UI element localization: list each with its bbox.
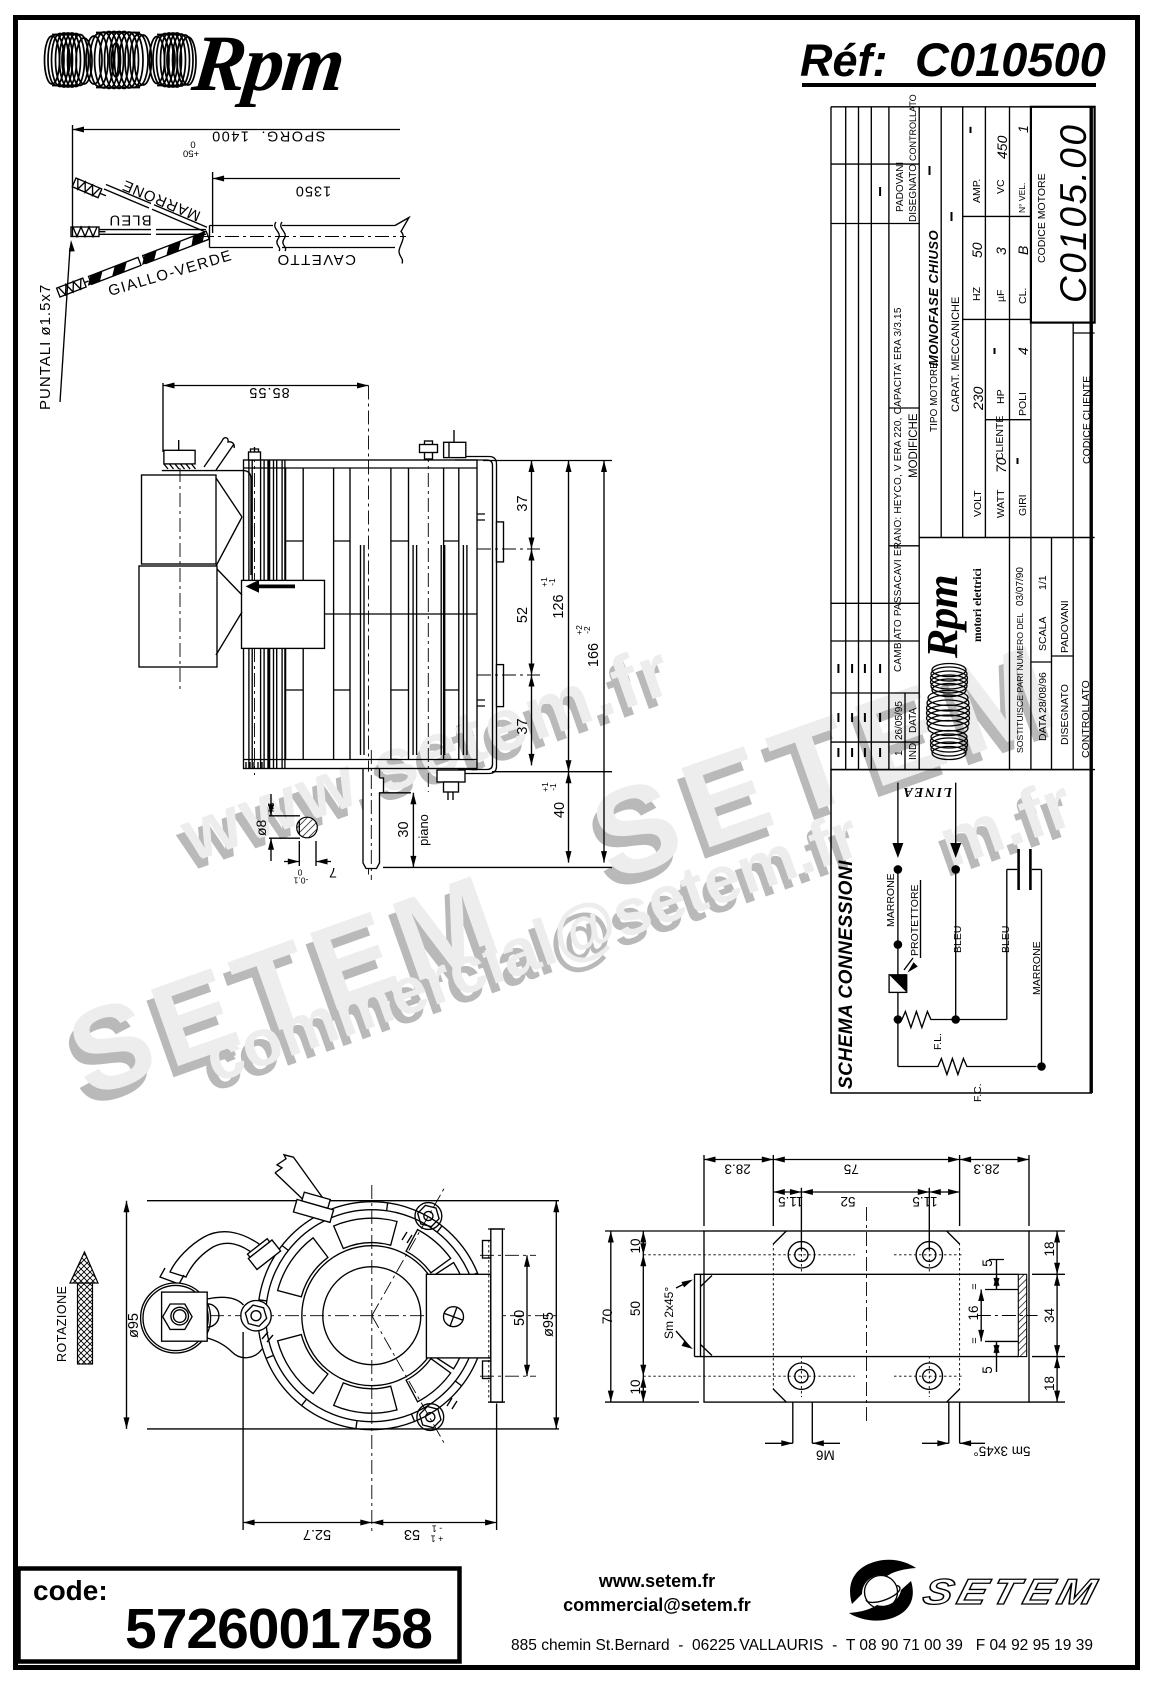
svg-text:10: 10 bbox=[628, 1238, 643, 1253]
svg-text:18: 18 bbox=[1042, 1376, 1057, 1391]
svg-text:166: 166 bbox=[586, 643, 602, 667]
svg-text:1: 1 bbox=[1015, 125, 1031, 133]
svg-text:TIPO MOTORE: TIPO MOTORE bbox=[929, 362, 940, 432]
svg-text:BLEU: BLEU bbox=[108, 212, 151, 229]
svg-text:code:: code: bbox=[33, 1575, 108, 1606]
svg-text:11.5: 11.5 bbox=[778, 1194, 803, 1209]
svg-text:C0105.00: C0105.00 bbox=[1053, 123, 1094, 303]
svg-text:HP: HP bbox=[995, 389, 1007, 404]
svg-text:-1: -1 bbox=[548, 783, 558, 791]
svg-text:BLEU: BLEU bbox=[1000, 926, 1012, 953]
svg-text:WATT: WATT bbox=[995, 489, 1007, 518]
svg-text:PADOVANI: PADOVANI bbox=[895, 162, 906, 212]
svg-text:885 chemin St.Bernard - 0622: 885 chemin St.Bernard - 06225 VALLAURIS … bbox=[511, 1637, 1093, 1654]
svg-text:5: 5 bbox=[980, 1259, 995, 1267]
svg-text:5: 5 bbox=[980, 1366, 995, 1374]
svg-text:10: 10 bbox=[628, 1379, 643, 1394]
svg-text:CAMBIATO PASSACAVI ERANO: HEYC: CAMBIATO PASSACAVI ERANO: HEYCO, V ERA 2… bbox=[893, 307, 904, 672]
svg-text:1350: 1350 bbox=[295, 183, 331, 199]
svg-text:PROTETTORE: PROTETTORE bbox=[909, 884, 921, 956]
svg-text:MONOFASE CHIUSO: MONOFASE CHIUSO bbox=[926, 230, 941, 366]
svg-text:SCALA: SCALA bbox=[1037, 617, 1049, 651]
svg-text:40: 40 bbox=[552, 802, 568, 818]
svg-text:F.L.: F.L. bbox=[932, 1033, 944, 1050]
svg-text:37: 37 bbox=[515, 718, 531, 734]
svg-text:11.5: 11.5 bbox=[912, 1194, 937, 1209]
svg-text:50: 50 bbox=[512, 1310, 528, 1326]
svg-text:-2: -2 bbox=[582, 626, 592, 634]
svg-text:BLEU: BLEU bbox=[952, 926, 964, 953]
svg-text:PUNTALI ø1.5x7: PUNTALI ø1.5x7 bbox=[37, 284, 54, 410]
svg-text:M6: M6 bbox=[816, 1448, 835, 1463]
svg-text:126: 126 bbox=[551, 594, 567, 618]
svg-text:+ 1: + 1 bbox=[431, 1534, 444, 1544]
svg-text:5726001758: 5726001758 bbox=[125, 1597, 432, 1661]
svg-text:7: 7 bbox=[329, 865, 337, 881]
svg-text:18: 18 bbox=[1042, 1241, 1057, 1256]
svg-text:03/07/90: 03/07/90 bbox=[1015, 567, 1026, 606]
svg-text:F.C.: F.C. bbox=[972, 1083, 984, 1102]
svg-text:52: 52 bbox=[840, 1194, 855, 1209]
svg-text:75: 75 bbox=[844, 1162, 859, 1177]
svg-text:SPORG. 1400: SPORG. 1400 bbox=[211, 128, 326, 144]
svg-text:CODICE CLIENTE: CODICE CLIENTE bbox=[1081, 376, 1093, 464]
svg-text:26/05/95: 26/05/95 bbox=[894, 701, 905, 740]
svg-text:commercial@setem.fr: commercial@setem.fr bbox=[563, 1595, 751, 1615]
svg-text:-0.1: -0.1 bbox=[293, 876, 308, 886]
svg-text:LINEA: LINEA bbox=[902, 784, 953, 799]
svg-text:IND: IND bbox=[908, 743, 919, 760]
svg-text:50: 50 bbox=[628, 1301, 643, 1316]
svg-text:MODIFICHE: MODIFICHE bbox=[908, 413, 920, 478]
svg-text:34: 34 bbox=[1042, 1308, 1057, 1324]
svg-text:1: 1 bbox=[894, 750, 905, 756]
svg-text:Rpm: Rpm bbox=[188, 20, 348, 108]
svg-text:SCHEMA CONNESSIONI: SCHEMA CONNESSIONI bbox=[836, 860, 857, 1089]
svg-text:50: 50 bbox=[969, 242, 985, 258]
svg-text:3: 3 bbox=[993, 247, 1009, 255]
svg-text:AMP.: AMP. bbox=[971, 179, 983, 203]
svg-text:motori elettrici: motori elettrici bbox=[972, 567, 984, 642]
svg-text:CONTROLLATO: CONTROLLATO bbox=[908, 94, 918, 161]
svg-text:-1: -1 bbox=[547, 578, 557, 586]
svg-text:CARAT. MECCANICHE: CARAT. MECCANICHE bbox=[950, 297, 962, 412]
svg-text:28/08/96: 28/08/96 bbox=[1037, 672, 1049, 713]
svg-text:Sm 2x45°: Sm 2x45° bbox=[662, 1287, 676, 1339]
svg-text:DISEGNATO: DISEGNATO bbox=[1059, 684, 1071, 745]
svg-text:230: 230 bbox=[970, 386, 986, 411]
svg-text:=: = bbox=[969, 1337, 981, 1343]
svg-text:16: 16 bbox=[966, 1305, 981, 1320]
svg-text:52.7: 52.7 bbox=[303, 1526, 331, 1542]
svg-text:=: = bbox=[969, 1283, 981, 1289]
svg-text:ø95: ø95 bbox=[126, 1313, 142, 1338]
svg-text:www.setem.fr: www.setem.fr bbox=[598, 1571, 715, 1591]
svg-text:POLI: POLI bbox=[1017, 392, 1029, 416]
svg-text:DATA: DATA bbox=[1037, 715, 1049, 741]
svg-text:PADOVANI: PADOVANI bbox=[1059, 600, 1071, 653]
svg-text:CODICE MOTORE: CODICE MOTORE bbox=[1036, 173, 1048, 263]
svg-text:4: 4 bbox=[1015, 347, 1031, 355]
svg-text:VC: VC bbox=[995, 179, 1007, 194]
svg-text:37: 37 bbox=[515, 495, 531, 511]
svg-text:piano: piano bbox=[416, 814, 431, 846]
svg-text:85.55: 85.55 bbox=[248, 384, 289, 400]
svg-text:450: 450 bbox=[994, 135, 1010, 159]
svg-text:N° VEL.: N° VEL. bbox=[1017, 183, 1027, 213]
svg-text:B: B bbox=[1015, 246, 1031, 255]
svg-text:DATA: DATA bbox=[908, 707, 919, 733]
svg-text:DISEGNATO: DISEGNATO bbox=[908, 164, 919, 222]
svg-text:5m 3x45°: 5m 3x45° bbox=[973, 1444, 1030, 1459]
svg-text:Rpm: Rpm bbox=[918, 575, 967, 659]
svg-text:VOLT: VOLT bbox=[972, 490, 984, 517]
svg-text:MARRONE: MARRONE bbox=[1031, 941, 1043, 995]
svg-text:CL.: CL. bbox=[1017, 288, 1029, 304]
svg-text:CAVETTO: CAVETTO bbox=[276, 251, 356, 268]
svg-text:Réf:: Réf: bbox=[800, 35, 888, 86]
svg-text:ø8: ø8 bbox=[253, 819, 269, 836]
svg-text:HZ: HZ bbox=[971, 286, 983, 301]
svg-text:70: 70 bbox=[599, 1309, 615, 1325]
svg-text:- 1: - 1 bbox=[432, 1524, 443, 1534]
svg-text:1/1: 1/1 bbox=[1037, 575, 1049, 590]
svg-text:+50: +50 bbox=[183, 148, 199, 159]
svg-text:SOSTITUISCE PARI NUMERO DEL: SOSTITUISCE PARI NUMERO DEL bbox=[1015, 613, 1025, 753]
svg-text:CONTROLLATO: CONTROLLATO bbox=[1080, 680, 1092, 758]
svg-text:C010500: C010500 bbox=[915, 33, 1106, 86]
svg-text:CLIENTE: CLIENTE bbox=[994, 416, 1006, 460]
svg-text:GIRI: GIRI bbox=[1017, 494, 1029, 516]
svg-text:28.3: 28.3 bbox=[973, 1162, 999, 1177]
svg-text:30: 30 bbox=[396, 821, 412, 837]
svg-text:h6: h6 bbox=[266, 802, 276, 812]
svg-text:MARRONE: MARRONE bbox=[885, 873, 897, 927]
svg-text:SETEM: SETEM bbox=[919, 1571, 1105, 1612]
svg-text:52: 52 bbox=[515, 607, 531, 623]
svg-text:53: 53 bbox=[404, 1526, 420, 1542]
svg-text:ROTAZIONE: ROTAZIONE bbox=[55, 1286, 69, 1363]
svg-text:µF: µF bbox=[995, 290, 1007, 302]
svg-text:28.3: 28.3 bbox=[724, 1162, 750, 1177]
